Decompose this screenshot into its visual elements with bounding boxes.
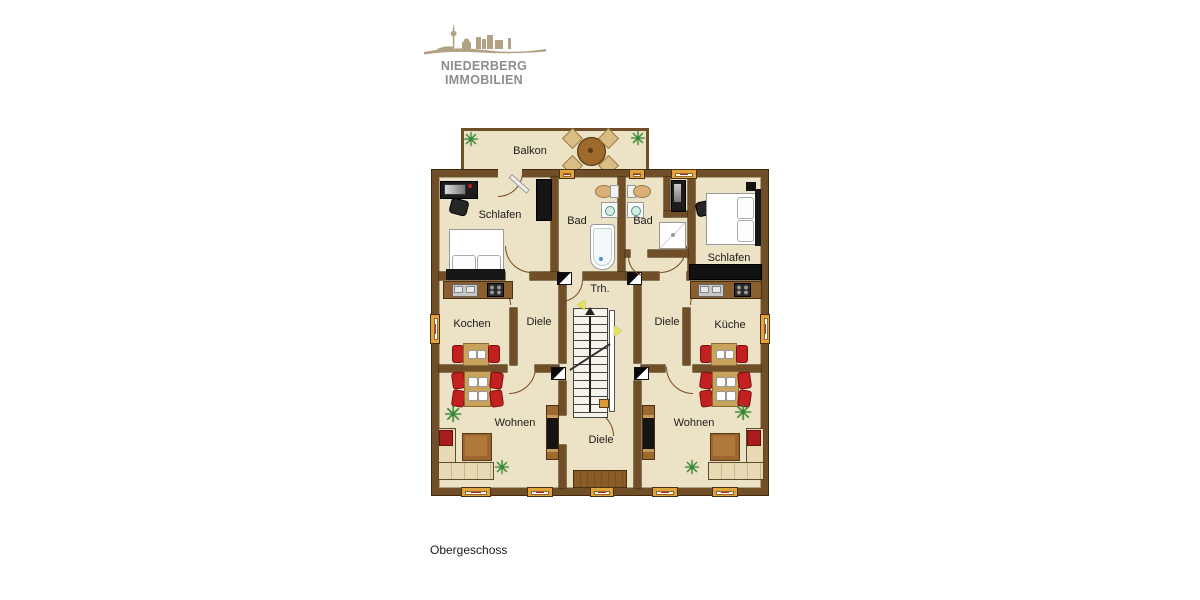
room-label-treppenhaus: Trh. — [575, 283, 625, 295]
room-label-schlafen-left: Schlafen — [465, 209, 535, 221]
window-icon — [652, 487, 678, 497]
window-icon — [590, 487, 614, 497]
desk-accessory-icon — [468, 184, 472, 188]
wall — [634, 381, 641, 488]
room-label-diele-right: Diele — [642, 316, 692, 328]
chair-icon — [737, 371, 752, 390]
pillow-icon — [737, 197, 754, 219]
sofa-cushion-icon — [439, 430, 453, 446]
stove-icon — [487, 283, 504, 297]
coffee-table-top — [465, 436, 487, 456]
plant-icon: ✳ — [494, 459, 510, 478]
chair-icon — [489, 371, 504, 390]
window-icon — [461, 487, 491, 497]
wall — [625, 250, 630, 257]
room-label-wohnen-right: Wohnen — [659, 417, 729, 429]
floor-title: Obergeschoss — [430, 543, 507, 557]
shower-drain — [671, 233, 675, 237]
plant-icon: ✳ — [684, 459, 700, 478]
room-label-diele-center: Diele — [576, 434, 626, 446]
window-icon — [559, 169, 575, 179]
room-label-balkon: Balkon — [500, 145, 560, 157]
room-label-bad-right: Bad — [623, 215, 663, 227]
pillow-icon — [737, 220, 754, 242]
entrance-door-icon — [551, 367, 566, 380]
sink-icon — [601, 202, 618, 218]
wall — [583, 272, 626, 280]
wall — [634, 280, 641, 363]
plant-icon: ✳ — [734, 402, 752, 424]
sofa-icon — [708, 462, 764, 480]
stair-direction-line — [589, 316, 591, 412]
headboard-icon — [755, 189, 761, 246]
dining-table-icon — [463, 343, 489, 366]
window-icon — [629, 169, 645, 179]
doormat — [573, 470, 627, 488]
mirror-icon — [674, 184, 681, 202]
room-label-diele-left: Diele — [514, 316, 564, 328]
wall — [559, 381, 566, 415]
window-icon — [527, 487, 553, 497]
room-label-schlafen-right: Schlafen — [694, 252, 764, 264]
room-label-kueche: Küche — [700, 319, 760, 331]
window-icon — [712, 487, 738, 497]
wall — [530, 272, 559, 280]
dining-table-icon — [711, 343, 737, 366]
wall — [559, 445, 566, 488]
floorplan-page: NIEDERBERG IMMOBILIEN ✳ ✳ — [0, 0, 1200, 600]
monitor-icon — [444, 184, 466, 195]
room-label-kochen: Kochen — [437, 318, 507, 330]
nightstand-icon — [746, 182, 756, 191]
room-label-wohnen-left: Wohnen — [480, 417, 550, 429]
door-direction-icon — [577, 300, 585, 310]
entrance-door-icon — [634, 367, 649, 380]
plant-icon: ✳ — [463, 131, 479, 150]
balcony-table-center — [588, 148, 593, 153]
plant-icon: ✳ — [444, 404, 462, 426]
stair-arrow-icon — [585, 307, 595, 315]
window-icon — [671, 169, 697, 179]
plant-icon: ✳ — [630, 130, 646, 149]
toilet-tank-icon — [610, 185, 619, 198]
logo-text: NIEDERBERG IMMOBILIEN — [420, 59, 548, 87]
chair-icon — [489, 389, 504, 408]
chair-icon — [736, 345, 748, 363]
headboard-icon — [446, 269, 505, 280]
toilet-icon — [633, 185, 651, 198]
coffee-table-top — [713, 436, 735, 456]
window-icon — [760, 314, 770, 344]
wardrobe-icon — [536, 179, 552, 221]
chair-icon — [488, 345, 500, 363]
bathtub-drain — [599, 257, 603, 261]
dining-table-icon — [464, 371, 491, 407]
wardrobe-icon — [689, 264, 762, 280]
sofa-cushion-icon — [747, 430, 761, 446]
sofa-icon — [438, 462, 494, 480]
door-direction-icon — [614, 326, 622, 336]
tv-cabinet-icon — [642, 405, 655, 460]
tv-cabinet-icon — [546, 405, 559, 460]
room-label-bad-left: Bad — [557, 215, 597, 227]
stove-icon — [734, 283, 751, 297]
logo-skyline-icon — [424, 25, 546, 60]
kitchen-sink-icon — [452, 284, 478, 297]
kitchen-sink-icon — [698, 284, 724, 297]
heater-icon — [599, 399, 609, 408]
